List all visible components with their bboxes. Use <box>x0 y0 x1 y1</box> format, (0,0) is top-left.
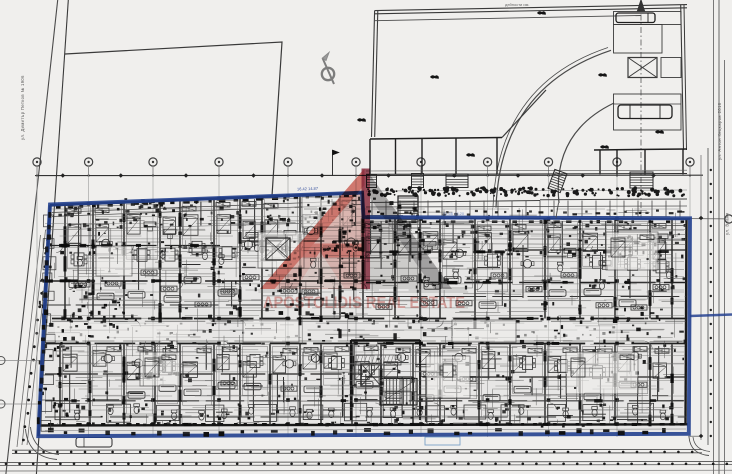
svg-text:APOSTOLIDIS REAL ESTATE: APOSTOLIDIS REAL ESTATE <box>263 293 465 312</box>
svg-text:дейности им.: дейности им. <box>505 2 530 7</box>
svg-text:ул. Антон Кецкаров 2016: ул. Антон Кецкаров 2016 <box>717 102 722 160</box>
svg-text:21.56 18.20: 21.56 18.20 <box>443 211 465 216</box>
svg-text:16.42 14.87: 16.42 14.87 <box>297 186 319 192</box>
svg-text:ул. Димитър Петков № 1906: ул. Димитър Петков № 1906 <box>20 75 25 140</box>
